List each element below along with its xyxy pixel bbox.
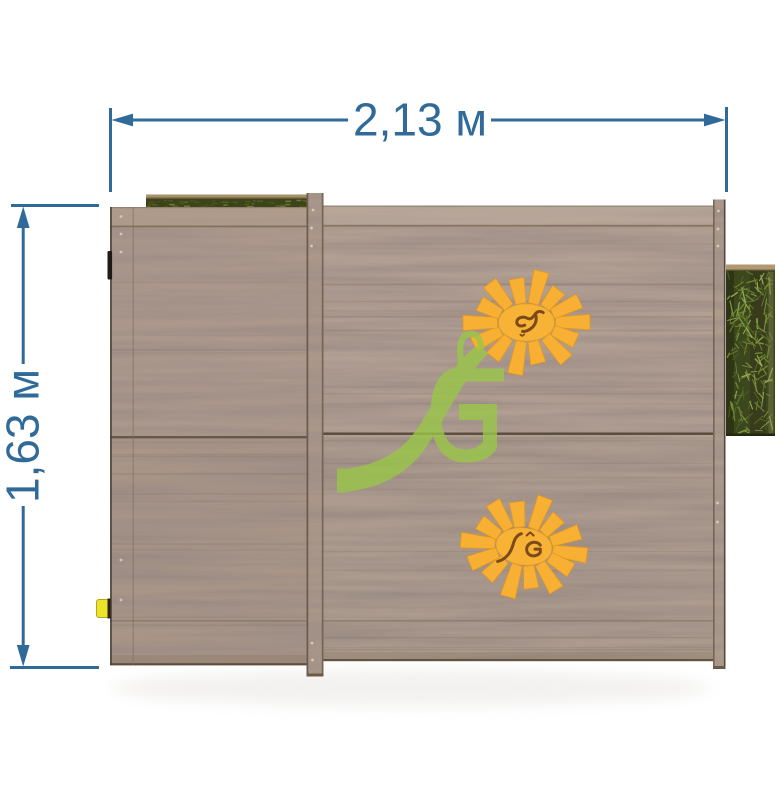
svg-text:2,13 м: 2,13 м [353,94,487,146]
svg-text:1,63 м: 1,63 м [0,369,49,503]
